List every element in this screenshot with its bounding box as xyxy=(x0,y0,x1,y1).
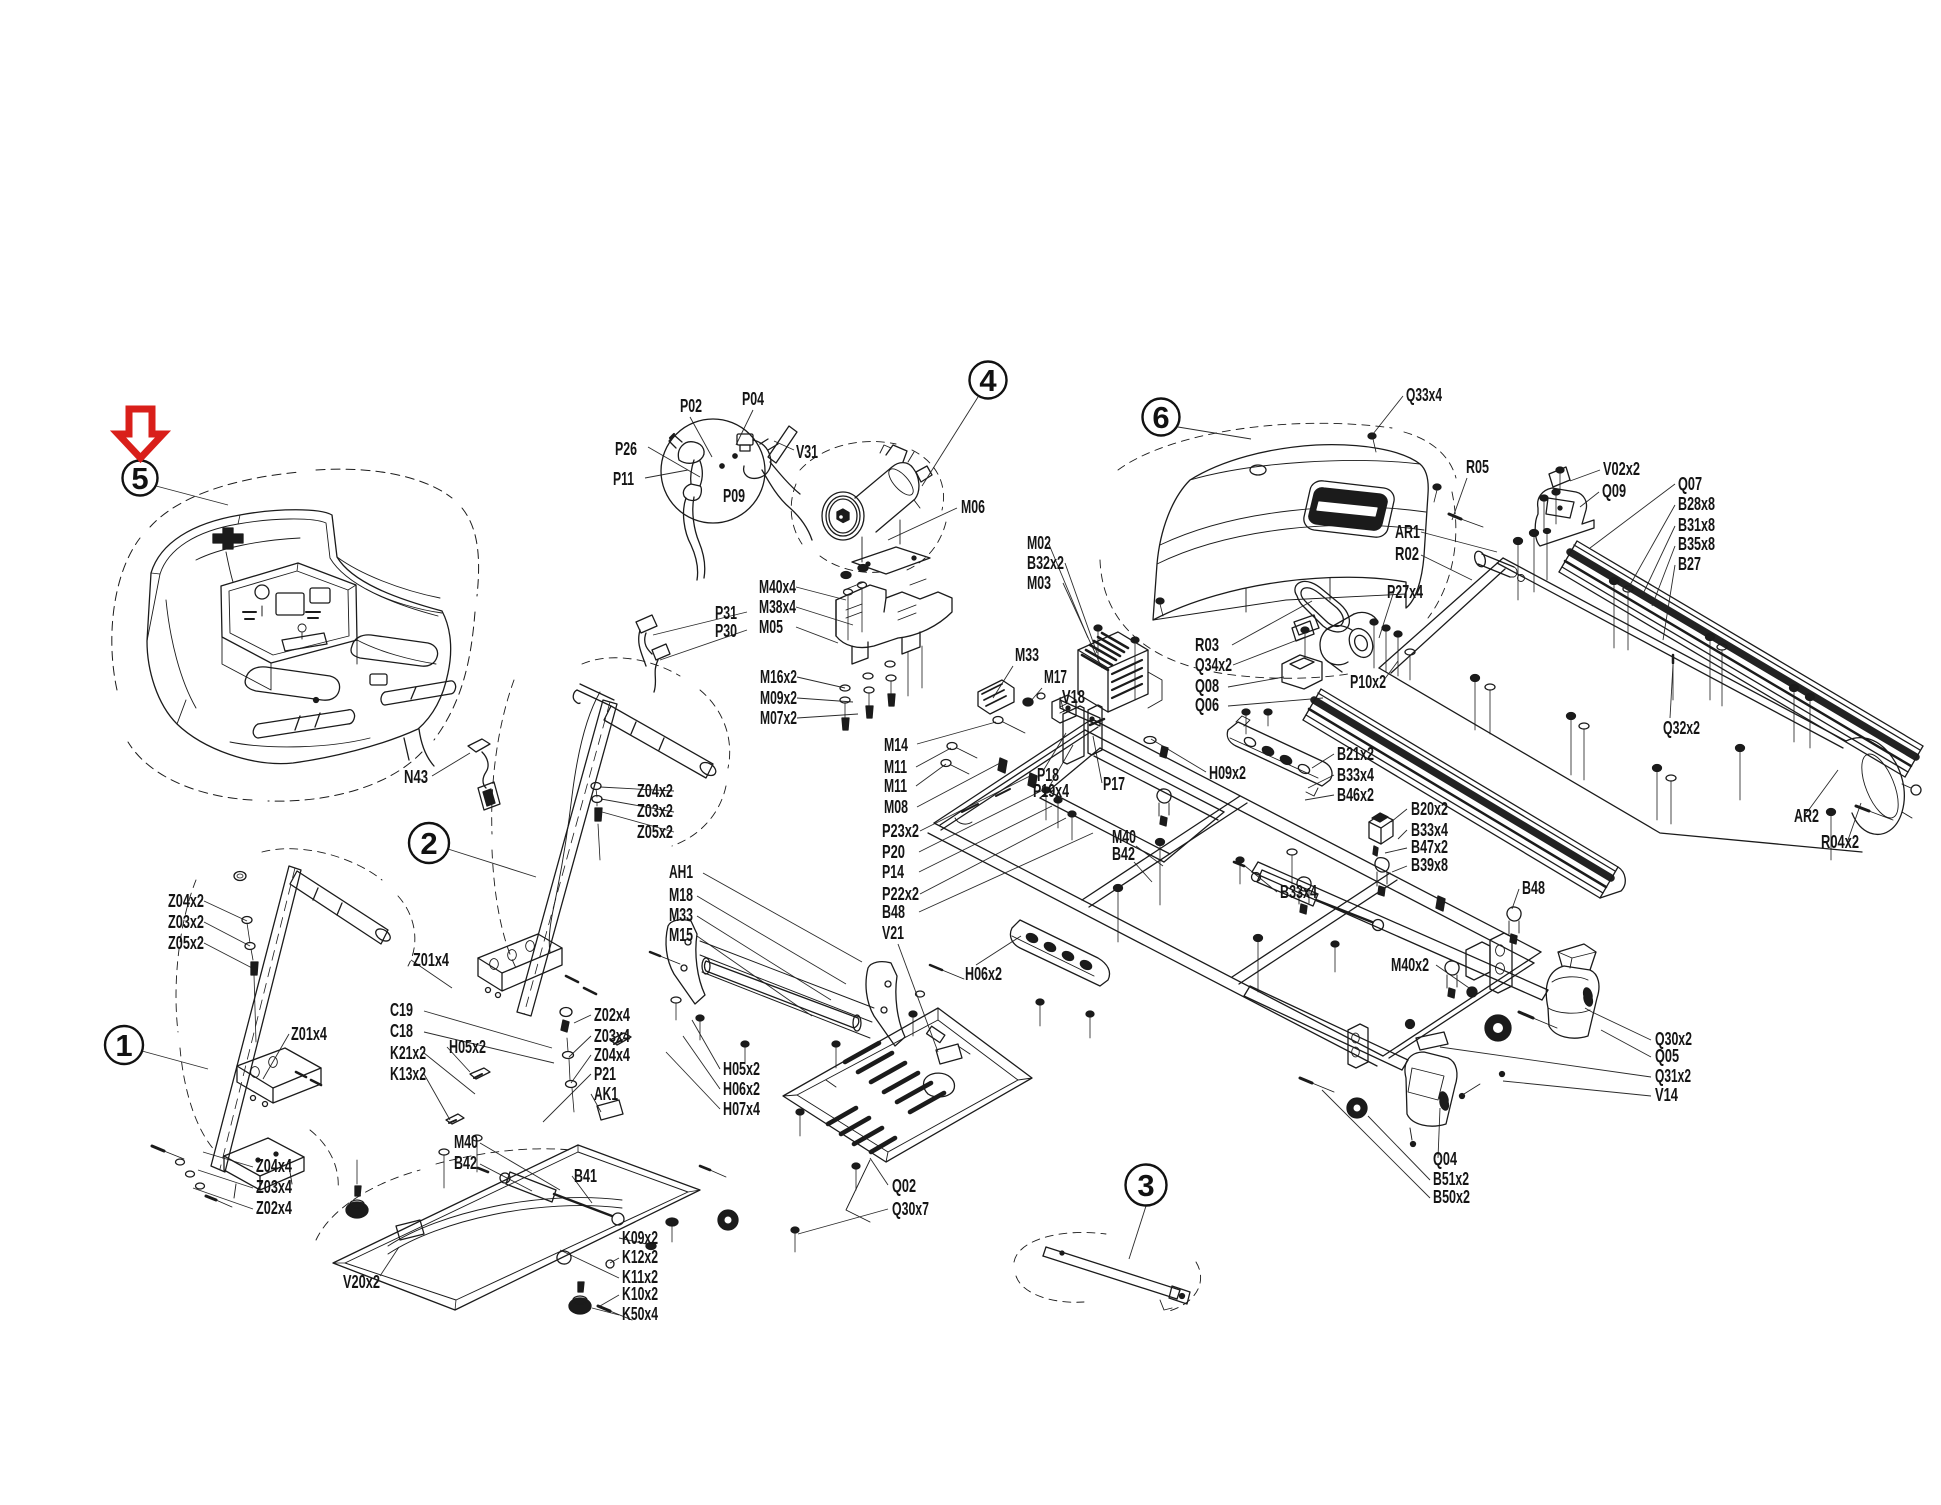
svg-text:K09x2: K09x2 xyxy=(622,1227,658,1248)
svg-text:M03: M03 xyxy=(1027,572,1051,593)
svg-text:M08: M08 xyxy=(884,796,908,817)
svg-text:V02x2: V02x2 xyxy=(1603,458,1640,479)
svg-text:P30: P30 xyxy=(715,620,737,641)
svg-text:Q02: Q02 xyxy=(892,1175,916,1196)
svg-text:M40x2: M40x2 xyxy=(1391,954,1429,975)
svg-text:M02: M02 xyxy=(1027,532,1051,553)
svg-text:Q09: Q09 xyxy=(1602,480,1626,501)
svg-text:B35x8: B35x8 xyxy=(1678,533,1715,554)
svg-text:P14: P14 xyxy=(882,861,904,882)
svg-text:Z05x2: Z05x2 xyxy=(637,821,673,842)
svg-text:K10x2: K10x2 xyxy=(622,1283,658,1304)
svg-text:Q05: Q05 xyxy=(1655,1045,1679,1066)
svg-text:M38x4: M38x4 xyxy=(759,596,796,617)
svg-text:R04x2: R04x2 xyxy=(1821,831,1859,852)
svg-text:Z04x4: Z04x4 xyxy=(594,1044,630,1065)
svg-text:Z03x2: Z03x2 xyxy=(637,800,673,821)
svg-text:Z05x2: Z05x2 xyxy=(168,932,204,953)
svg-text:P09: P09 xyxy=(723,485,745,506)
svg-text:Q04: Q04 xyxy=(1433,1148,1457,1169)
svg-text:M17: M17 xyxy=(1044,666,1067,687)
svg-text:M14: M14 xyxy=(884,734,908,755)
svg-text:P10x2: P10x2 xyxy=(1350,671,1386,692)
svg-text:M40x4: M40x4 xyxy=(759,576,796,597)
svg-text:Z04x2: Z04x2 xyxy=(637,780,673,801)
svg-text:B42: B42 xyxy=(1112,843,1135,864)
svg-text:5: 5 xyxy=(131,461,148,496)
svg-text:Z03x4: Z03x4 xyxy=(594,1025,630,1046)
svg-text:1: 1 xyxy=(115,1028,132,1063)
svg-text:H07x4: H07x4 xyxy=(723,1098,760,1119)
svg-text:AR1: AR1 xyxy=(1395,521,1420,542)
svg-text:AR2: AR2 xyxy=(1794,805,1819,826)
svg-text:P17: P17 xyxy=(1103,773,1125,794)
svg-text:B42: B42 xyxy=(454,1152,477,1173)
svg-text:H09x2: H09x2 xyxy=(1209,762,1246,783)
svg-text:M09x2: M09x2 xyxy=(760,687,797,708)
svg-text:H05x2: H05x2 xyxy=(449,1036,486,1057)
svg-text:P26: P26 xyxy=(615,438,637,459)
svg-text:2: 2 xyxy=(420,826,437,861)
svg-text:P27x4: P27x4 xyxy=(1387,581,1423,602)
svg-text:N43: N43 xyxy=(404,766,428,787)
svg-text:Z03x2: Z03x2 xyxy=(168,911,204,932)
svg-text:M05: M05 xyxy=(759,616,783,637)
svg-text:B32x2: B32x2 xyxy=(1027,552,1064,573)
svg-text:M33: M33 xyxy=(1015,644,1039,665)
svg-text:B27: B27 xyxy=(1678,553,1701,574)
svg-text:V14: V14 xyxy=(1655,1084,1678,1105)
svg-text:Z02x4: Z02x4 xyxy=(594,1004,630,1025)
svg-text:V18: V18 xyxy=(1062,686,1085,707)
svg-text:C19: C19 xyxy=(390,999,413,1020)
svg-text:P02: P02 xyxy=(680,395,702,416)
svg-text:Q08: Q08 xyxy=(1195,675,1219,696)
svg-text:B48: B48 xyxy=(882,901,905,922)
svg-text:C18: C18 xyxy=(390,1020,413,1041)
svg-text:H06x2: H06x2 xyxy=(965,963,1002,984)
svg-text:B33x4: B33x4 xyxy=(1280,881,1317,902)
svg-text:4: 4 xyxy=(979,363,997,398)
svg-text:R05: R05 xyxy=(1466,456,1489,477)
svg-text:Z02x4: Z02x4 xyxy=(256,1197,292,1218)
svg-text:P23x2: P23x2 xyxy=(882,820,919,841)
svg-text:R03: R03 xyxy=(1195,634,1219,655)
svg-text:Q31x2: Q31x2 xyxy=(1655,1065,1691,1086)
svg-text:B31x8: B31x8 xyxy=(1678,514,1715,535)
svg-text:P11: P11 xyxy=(613,468,634,489)
svg-text:Z04x2: Z04x2 xyxy=(168,890,204,911)
svg-text:R02: R02 xyxy=(1395,543,1419,564)
svg-text:Z01x4: Z01x4 xyxy=(291,1023,327,1044)
svg-text:Z03x4: Z03x4 xyxy=(256,1176,292,1197)
svg-text:P04: P04 xyxy=(742,388,764,409)
svg-text:M18: M18 xyxy=(669,884,693,905)
svg-text:M06: M06 xyxy=(961,496,985,517)
svg-text:H06x2: H06x2 xyxy=(723,1078,760,1099)
svg-text:M15: M15 xyxy=(669,924,693,945)
svg-text:6: 6 xyxy=(1152,400,1169,435)
svg-text:B39x8: B39x8 xyxy=(1411,854,1448,875)
svg-text:AH1: AH1 xyxy=(669,861,693,882)
svg-text:P19x4: P19x4 xyxy=(1033,780,1069,801)
svg-text:B46x2: B46x2 xyxy=(1337,784,1374,805)
svg-text:B33x4: B33x4 xyxy=(1337,764,1374,785)
svg-text:B20x2: B20x2 xyxy=(1411,798,1448,819)
svg-text:M40: M40 xyxy=(454,1131,478,1152)
svg-text:B21x2: B21x2 xyxy=(1337,743,1374,764)
svg-text:B50x2: B50x2 xyxy=(1433,1186,1470,1207)
svg-text:V20x2: V20x2 xyxy=(343,1271,380,1292)
svg-text:Q06: Q06 xyxy=(1195,694,1219,715)
svg-text:B48: B48 xyxy=(1522,877,1545,898)
svg-text:K50x4: K50x4 xyxy=(622,1303,658,1324)
svg-text:3: 3 xyxy=(1137,1168,1154,1203)
svg-text:B28x8: B28x8 xyxy=(1678,493,1715,514)
svg-text:Q30x7: Q30x7 xyxy=(892,1198,929,1219)
svg-text:K12x2: K12x2 xyxy=(622,1246,658,1267)
svg-text:Q34x2: Q34x2 xyxy=(1195,654,1232,675)
svg-text:M33: M33 xyxy=(669,904,693,925)
svg-text:Q32x2: Q32x2 xyxy=(1663,717,1700,738)
svg-text:M07x2: M07x2 xyxy=(760,707,797,728)
svg-text:M16x2: M16x2 xyxy=(760,666,797,687)
svg-text:M11: M11 xyxy=(884,756,907,777)
svg-text:M11: M11 xyxy=(884,775,907,796)
svg-text:Q33x4: Q33x4 xyxy=(1406,384,1442,405)
svg-text:P20: P20 xyxy=(882,841,905,862)
svg-text:P21: P21 xyxy=(594,1063,616,1084)
svg-text:Z04x4: Z04x4 xyxy=(256,1155,292,1176)
svg-text:H05x2: H05x2 xyxy=(723,1058,760,1079)
svg-text:V21: V21 xyxy=(882,922,904,943)
svg-text:K13x2: K13x2 xyxy=(390,1063,426,1084)
svg-text:V31: V31 xyxy=(796,441,818,462)
svg-text:B41: B41 xyxy=(574,1165,597,1186)
svg-text:AK1: AK1 xyxy=(594,1083,618,1104)
svg-text:Z01x4: Z01x4 xyxy=(413,949,449,970)
svg-text:K21x2: K21x2 xyxy=(390,1042,426,1063)
svg-text:Q07: Q07 xyxy=(1678,473,1702,494)
